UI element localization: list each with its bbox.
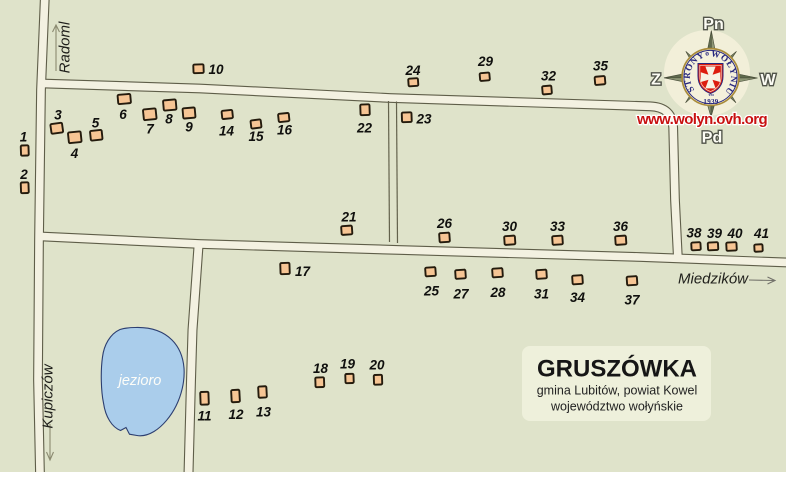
svg-text:15: 15: [248, 129, 264, 144]
svg-text:36: 36: [613, 219, 629, 234]
svg-text:12: 12: [228, 407, 244, 422]
svg-text:2: 2: [19, 167, 28, 182]
svg-text:Miedzików: Miedzików: [678, 271, 749, 288]
svg-text:28: 28: [489, 285, 506, 300]
svg-text:38: 38: [686, 226, 702, 241]
svg-text:GRUSZÓWKA: GRUSZÓWKA: [537, 355, 697, 383]
svg-text:9: 9: [185, 120, 193, 135]
svg-text:W: W: [760, 72, 776, 89]
svg-text:14: 14: [219, 124, 235, 139]
svg-text:34: 34: [570, 290, 586, 305]
svg-text:31: 31: [534, 287, 549, 302]
svg-text:16: 16: [277, 123, 293, 138]
svg-text:17: 17: [295, 264, 312, 279]
svg-text:Pd: Pd: [702, 130, 722, 147]
svg-text:21: 21: [340, 210, 356, 225]
svg-text:40: 40: [726, 226, 743, 241]
svg-text:32: 32: [541, 69, 557, 84]
svg-text:6: 6: [119, 107, 127, 122]
svg-text:29: 29: [477, 54, 494, 69]
svg-text:gmina Lubitów, powiat Kowel: gmina Lubitów, powiat Kowel: [537, 384, 698, 398]
svg-text:11: 11: [197, 409, 211, 424]
svg-text:5: 5: [92, 116, 100, 131]
svg-text:8: 8: [165, 112, 173, 127]
svg-text:25: 25: [423, 284, 440, 299]
svg-text:Radoml: Radoml: [57, 21, 74, 73]
svg-text:22: 22: [356, 121, 373, 136]
svg-text:www.wolyn.ovh.org: www.wolyn.ovh.org: [636, 111, 768, 128]
svg-text:3: 3: [54, 108, 62, 123]
svg-text:TM: TM: [708, 93, 714, 97]
svg-text:Kupiczów: Kupiczów: [40, 363, 57, 428]
svg-text:4: 4: [70, 146, 79, 161]
svg-text:jezioro: jezioro: [117, 373, 162, 389]
svg-text:Pn: Pn: [703, 16, 723, 33]
svg-text:26: 26: [436, 216, 453, 231]
svg-text:województwo wołyńskie: województwo wołyńskie: [550, 400, 683, 414]
svg-text:24: 24: [404, 63, 421, 78]
svg-text:33: 33: [550, 219, 566, 234]
svg-text:Z: Z: [651, 72, 661, 89]
svg-text:30: 30: [502, 219, 518, 234]
svg-text:19: 19: [340, 357, 356, 372]
svg-text:37: 37: [624, 293, 641, 308]
svg-text:18: 18: [313, 361, 329, 376]
svg-text:35: 35: [593, 59, 609, 74]
svg-text:10: 10: [209, 62, 225, 77]
svg-text:1: 1: [20, 130, 28, 145]
svg-text:27: 27: [452, 287, 470, 302]
svg-text:23: 23: [416, 112, 433, 127]
svg-text:20: 20: [368, 358, 385, 373]
svg-text:41: 41: [753, 226, 769, 241]
svg-text:13: 13: [256, 405, 272, 420]
svg-text:39: 39: [707, 226, 723, 241]
svg-text:1939: 1939: [703, 98, 718, 106]
